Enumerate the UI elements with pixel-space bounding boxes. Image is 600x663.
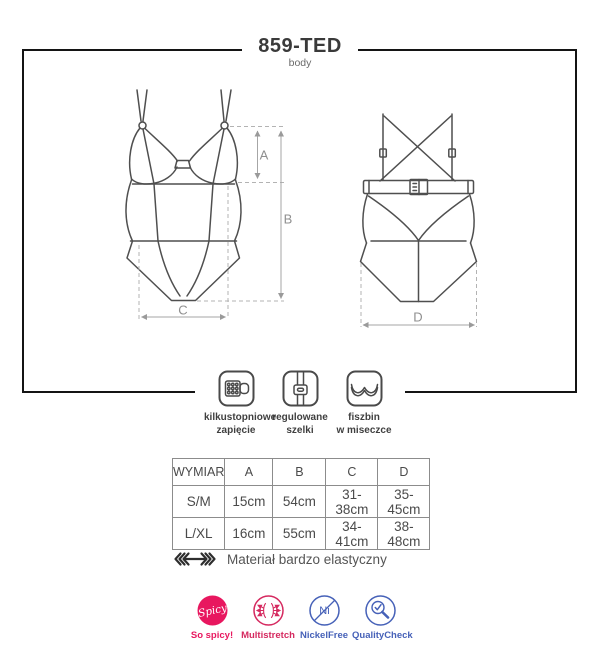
feature-underwire-cup: fiszbin w miseczce: [332, 370, 396, 437]
size-cell: L/XL: [173, 518, 225, 550]
hook-closure-icon: [218, 370, 255, 407]
value-cell: 55cm: [273, 518, 326, 550]
value-cell: 35-45cm: [378, 486, 430, 518]
material-note-row: Materiał bardzo elastyczny: [172, 551, 387, 567]
dimension-arrows: [142, 131, 475, 325]
front-view-drawing: [126, 90, 241, 301]
value-cell: 15cm: [225, 486, 273, 518]
value-cell: 34-41cm: [326, 518, 378, 550]
badge-label: So spicy!: [184, 631, 240, 641]
dimension-c-label: C: [178, 303, 187, 318]
value-cell: 31-38cm: [326, 486, 378, 518]
dimension-extension-lines: [139, 127, 477, 328]
dimension-d-label: D: [413, 310, 422, 325]
size-table-header-row: WYMIAR A B C D: [173, 459, 430, 486]
feature-adjustable-straps: regulowane szelki: [268, 370, 332, 437]
table-row: L/XL 16cm 55cm 34-41cm 38-48cm: [173, 518, 430, 550]
feature-label: regulowane szelki: [268, 412, 332, 437]
nickel-free-icon: Ni: [309, 595, 340, 626]
value-cell: 38-48cm: [378, 518, 430, 550]
col-header: C: [326, 459, 378, 486]
multistretch-icon: [253, 595, 284, 626]
col-header: D: [378, 459, 430, 486]
col-header: WYMIAR: [173, 459, 225, 486]
feature-label: fiszbin w miseczce: [332, 412, 396, 437]
table-row: S/M 15cm 54cm 31-38cm 35-45cm: [173, 486, 430, 518]
value-cell: 16cm: [225, 518, 273, 550]
stretch-arrows-icon: [172, 551, 218, 567]
material-note-text: Materiał bardzo elastyczny: [227, 552, 387, 567]
badge-label: QualityCheck: [352, 631, 408, 641]
badge-label: NickelFree: [296, 631, 352, 641]
size-table: WYMIAR A B C D S/M 15cm 54cm 31-38cm 35-…: [172, 458, 430, 550]
underwire-cup-icon: [346, 370, 383, 407]
header: 859-TED body: [0, 35, 600, 71]
col-header: B: [273, 459, 326, 486]
badge-label: Multistretch: [240, 631, 296, 641]
spicy-icon: Spicy: [197, 595, 228, 626]
adjustable-straps-icon: [282, 370, 319, 407]
dimension-b-label: B: [284, 212, 293, 227]
svg-text:Ni: Ni: [319, 605, 329, 617]
badges-row: Spicy So spicy!: [184, 595, 408, 641]
value-cell: 54cm: [273, 486, 326, 518]
back-view-drawing: [361, 114, 477, 302]
badge-nickel-free: Ni NickelFree: [296, 595, 352, 641]
col-header: A: [225, 459, 273, 486]
size-cell: S/M: [173, 486, 225, 518]
badge-quality-check: QualityCheck: [352, 595, 408, 641]
page-subtitle: body: [258, 57, 342, 69]
badge-so-spicy: Spicy So spicy!: [184, 595, 240, 641]
product-spec-sheet: 859-TED body: [0, 0, 600, 663]
quality-check-icon: [365, 595, 396, 626]
dimension-a-label: A: [260, 148, 269, 163]
page-title: 859-TED: [258, 35, 342, 57]
feature-icons-row: kilkustopniowe zapięcie regulowane szelk…: [0, 370, 600, 437]
feature-label: kilkustopniowe zapięcie: [204, 412, 268, 437]
badge-multistretch: Multistretch: [240, 595, 296, 641]
feature-hook-closure: kilkustopniowe zapięcie: [204, 370, 268, 437]
